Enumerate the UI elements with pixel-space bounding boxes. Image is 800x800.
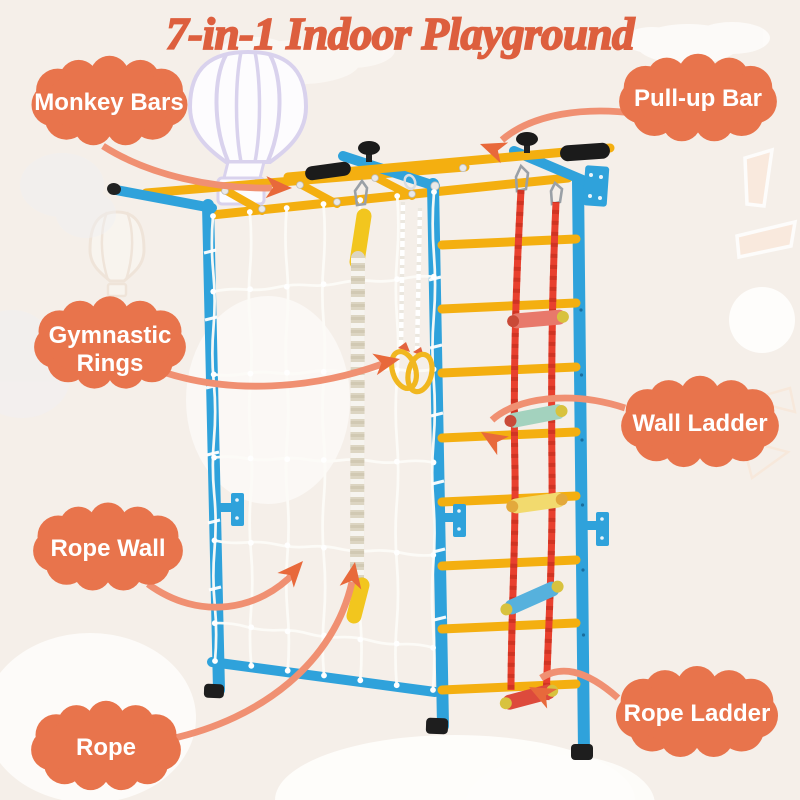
svg-text:Rope Wall: Rope Wall — [50, 535, 165, 562]
svg-text:Rope Ladder: Rope Ladder — [624, 700, 771, 727]
svg-text:Pull-up Bar: Pull-up Bar — [634, 85, 762, 112]
svg-text:Wall Ladder: Wall Ladder — [632, 410, 767, 437]
svg-text:Gymnastic: Gymnastic — [49, 322, 172, 349]
svg-text:Monkey Bars: Monkey Bars — [34, 89, 183, 116]
svg-text:Rope: Rope — [76, 734, 136, 761]
svg-text:Rings: Rings — [77, 350, 144, 377]
svg-text:7-in-1 Indoor Playground: 7-in-1 Indoor Playground — [166, 9, 636, 59]
